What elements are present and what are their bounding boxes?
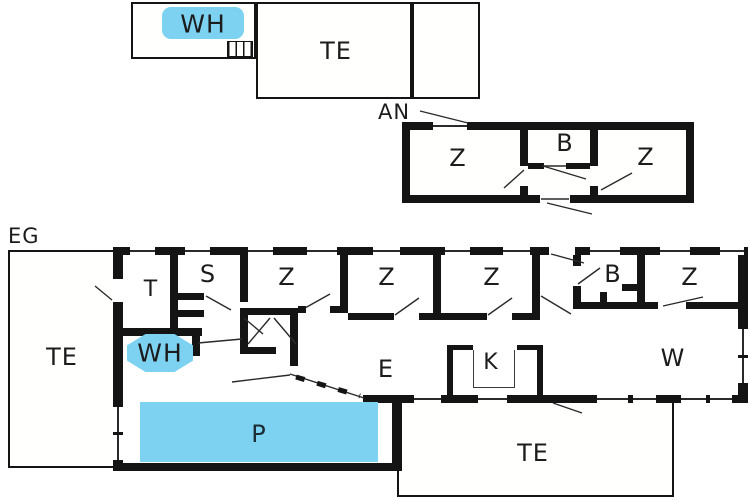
wall [240, 255, 248, 302]
thin-line [305, 294, 330, 308]
door-gap [540, 195, 570, 203]
wall [178, 293, 204, 300]
wall [637, 255, 645, 309]
window-gap [710, 395, 732, 403]
window-gap [373, 247, 400, 255]
room-label-w: W [661, 346, 686, 370]
room-label-b: B [604, 262, 621, 286]
kitchen-counter [447, 345, 473, 350]
window-gap [113, 407, 123, 432]
wall [566, 163, 590, 169]
thin-line [578, 268, 600, 284]
window-gap [130, 247, 155, 255]
kitchen-counter [447, 345, 453, 398]
wall [290, 308, 298, 366]
room-label-annex-z-left: Z [449, 146, 466, 170]
wall [178, 310, 204, 317]
wall [441, 313, 487, 320]
thin-line [395, 298, 419, 315]
window-gap [660, 247, 690, 255]
room-label-wh: WH [137, 341, 183, 366]
wall [528, 163, 544, 169]
wall [113, 463, 402, 471]
wall [298, 306, 306, 313]
window-gap [738, 358, 748, 383]
room-label-z4: Z [681, 265, 698, 289]
wall [330, 306, 348, 313]
wall [532, 255, 540, 320]
room-label-t: T [144, 279, 158, 301]
room-label-s: S [200, 262, 216, 286]
window-gap [681, 395, 706, 403]
ground-floor-title: EG [8, 226, 40, 247]
window-gap [478, 395, 507, 403]
wall [192, 330, 200, 356]
wall [600, 292, 607, 304]
kitchen-counter [537, 345, 543, 398]
thin-line [541, 296, 571, 314]
window-gap [414, 395, 441, 403]
wall [433, 255, 441, 320]
room-label-garage-te: TE [320, 39, 352, 63]
window-gap [503, 247, 530, 255]
thin-line [232, 375, 290, 382]
window-gap [633, 395, 656, 403]
room-label-p: P [251, 422, 266, 446]
window-gap [307, 247, 337, 255]
floorplan-canvas: WH TE AN Z B Z EG [0, 0, 750, 500]
room-label-annex-b: B [556, 131, 573, 155]
wall [348, 313, 394, 320]
door-gap [113, 279, 123, 302]
wall [392, 397, 402, 471]
wall [170, 255, 178, 335]
annex-title: AN [378, 102, 410, 123]
thin-line [248, 318, 270, 344]
thin-line [206, 296, 231, 310]
room-label-te-left: TE [46, 345, 78, 369]
thin-line [547, 203, 592, 214]
window-gap [248, 247, 273, 255]
room-label-annex-z-right: Z [637, 145, 654, 169]
door-gap [573, 266, 581, 286]
window-gap [445, 247, 470, 255]
wall [520, 130, 528, 166]
wall [622, 284, 638, 291]
window-gap [597, 395, 628, 403]
kitchen-counter [517, 345, 543, 350]
wall [240, 347, 276, 354]
room-label-e: E [378, 357, 394, 381]
window-gap [590, 247, 620, 255]
window-gap [720, 247, 744, 255]
wall [590, 130, 598, 166]
door-gap [658, 302, 686, 309]
thin-line [488, 298, 512, 315]
room-label-z3: Z [483, 265, 500, 289]
window-gap [433, 122, 467, 130]
wall [590, 186, 598, 195]
room-label-z1: Z [278, 265, 295, 289]
thin-line [198, 339, 242, 343]
window-gap [113, 435, 123, 460]
room-label-garage-wh: WH [180, 12, 226, 37]
dashed-partition [296, 377, 360, 396]
room-label-z2: Z [378, 265, 395, 289]
wall [340, 255, 348, 313]
stairs-icon [227, 41, 253, 57]
entrance-door-gap [549, 247, 575, 255]
wall [520, 186, 528, 195]
room-label-k: K [483, 352, 498, 374]
room-garage-side [412, 2, 480, 99]
room-label-te-bottom: TE [517, 441, 549, 465]
thin-line [290, 374, 364, 398]
window-gap [738, 329, 748, 355]
window-gap [185, 247, 210, 255]
